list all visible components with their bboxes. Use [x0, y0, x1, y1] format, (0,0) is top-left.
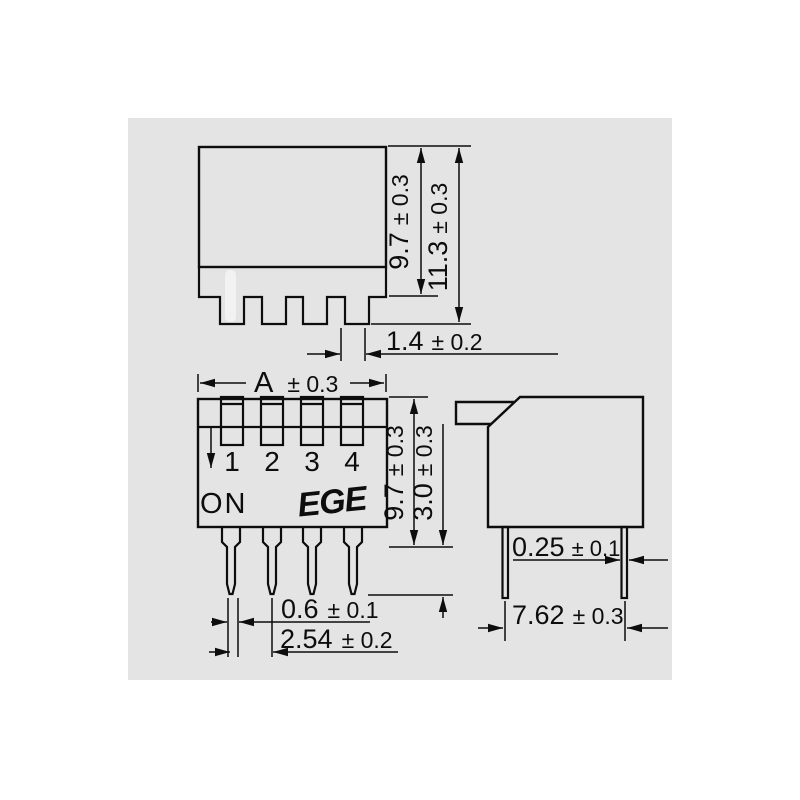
dim-label: 9.7± 0.3 [379, 425, 409, 521]
switch-number-3: 3 [304, 446, 320, 477]
on-label: ON [200, 488, 248, 520]
dim-label: 9.7± 0.3 [384, 174, 414, 270]
technical-drawing-page: 9.7± 0.3 11.3± 0.3 1.4± 0.2 A± 0.3 1 2 [0, 0, 800, 800]
switch-number-1: 1 [224, 446, 240, 477]
switch-number-4: 4 [344, 446, 360, 477]
switch-number-2: 2 [264, 446, 280, 477]
dim-label: 3.0± 0.3 [408, 425, 438, 521]
dim-label: A± 0.3 [254, 367, 338, 399]
glare-highlight [225, 270, 236, 322]
dip-switch-dimension-drawing: 9.7± 0.3 11.3± 0.3 1.4± 0.2 A± 0.3 1 2 [0, 0, 800, 800]
brand-logo: EGE [296, 479, 371, 524]
dim-label: 1.4± 0.2 [386, 326, 483, 356]
dim-label: 0.6± 0.1 [281, 594, 379, 624]
